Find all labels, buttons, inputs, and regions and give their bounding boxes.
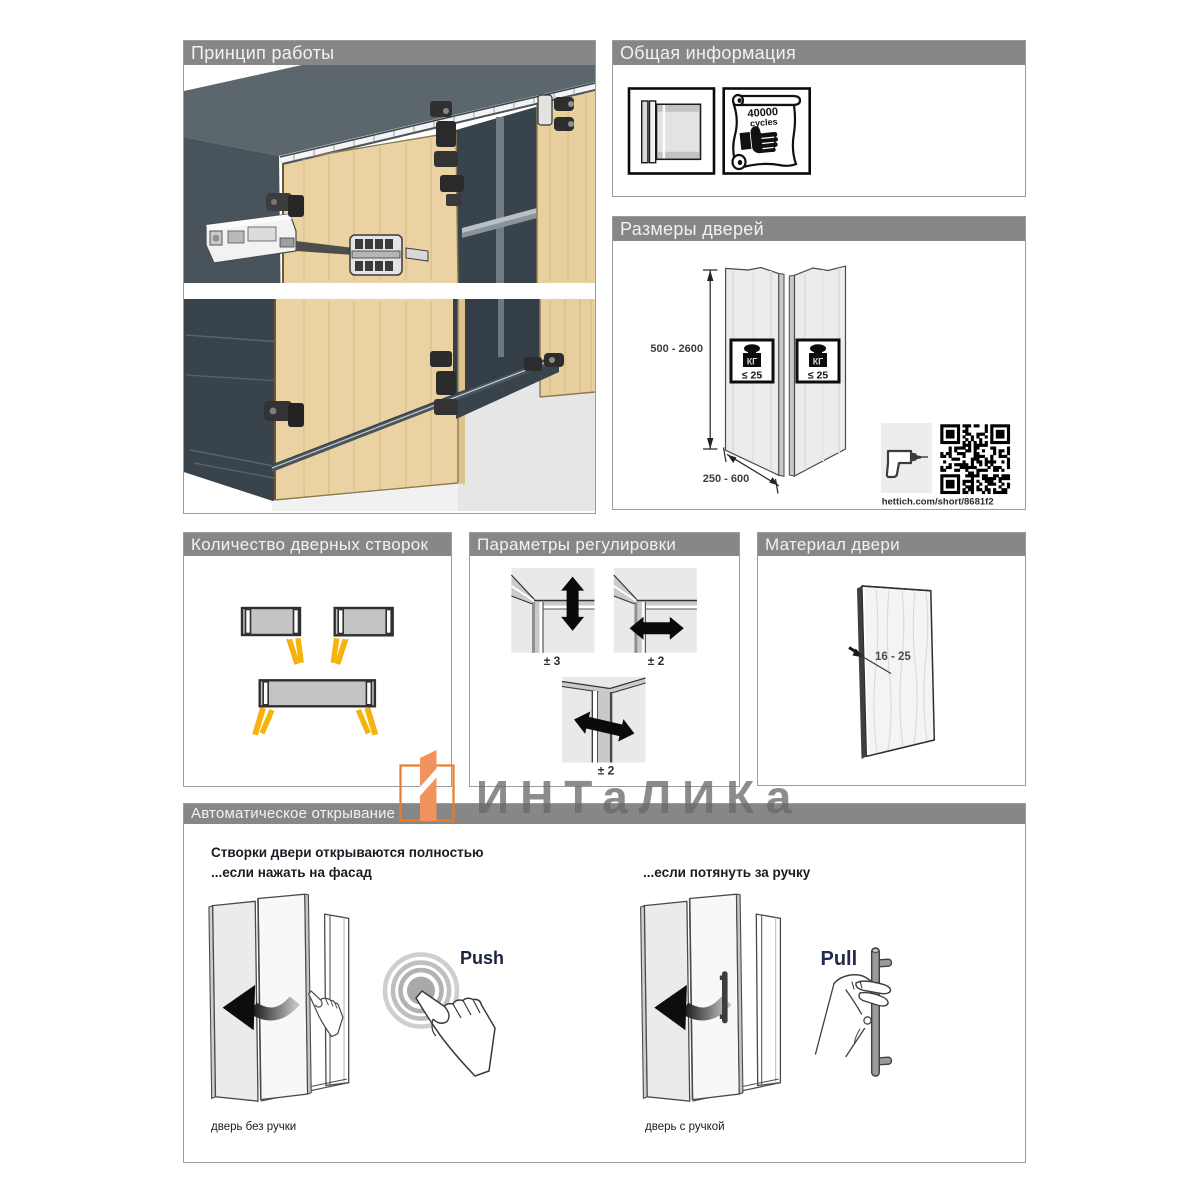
svg-text:500 - 2600: 500 - 2600	[650, 343, 703, 355]
svg-text:Push: Push	[460, 948, 504, 968]
svg-text:дверь без ручки: дверь без ручки	[211, 1121, 296, 1133]
svg-text:КГ: КГ	[813, 357, 824, 367]
svg-text:≤ 25: ≤ 25	[742, 370, 763, 382]
svg-text:Pull: Pull	[821, 948, 858, 970]
svg-text:≤ 25: ≤ 25	[808, 370, 829, 382]
svg-text:дверь с ручкой: дверь с ручкой	[645, 1121, 725, 1133]
svg-text:hettich.com/short/8681f2: hettich.com/short/8681f2	[882, 497, 994, 508]
svg-text:250 - 600: 250 - 600	[703, 473, 749, 485]
svg-text:16 - 25: 16 - 25	[875, 651, 911, 663]
svg-text:± 3: ± 3	[544, 654, 561, 668]
svg-text:± 2: ± 2	[648, 654, 665, 668]
svg-text:КГ: КГ	[747, 357, 758, 367]
svg-text:...если потянуть за ручку: ...если потянуть за ручку	[643, 865, 811, 880]
svg-text:...если нажать на фасад: ...если нажать на фасад	[211, 865, 372, 880]
svg-text:Створки двери открываются полн: Створки двери открываются полностью	[211, 845, 484, 860]
